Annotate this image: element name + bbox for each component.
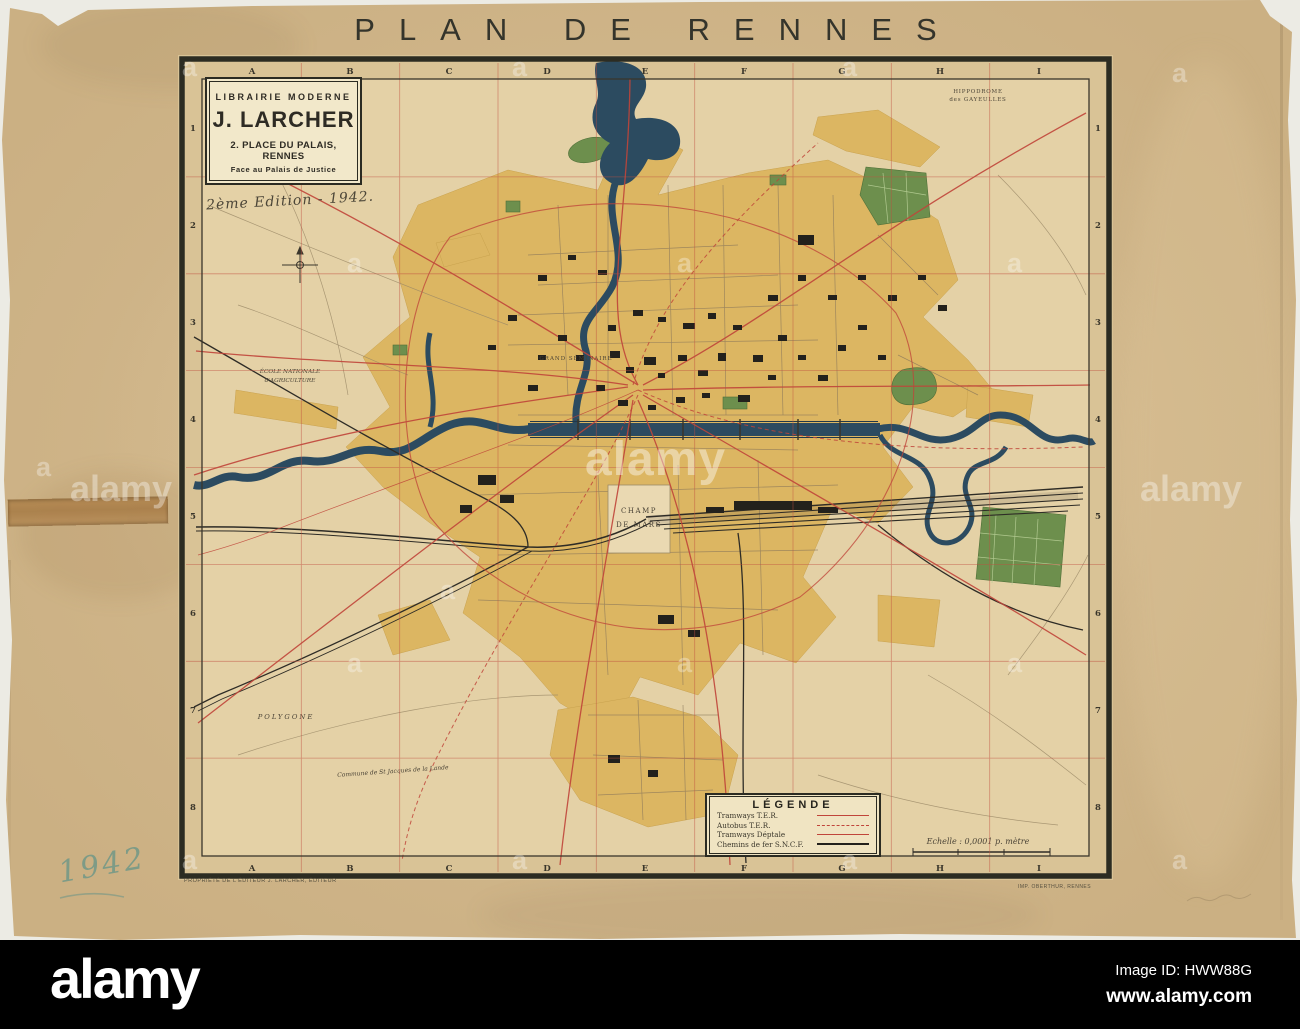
seminaire-label: GRAND SÉMINAIRE bbox=[539, 354, 612, 362]
grid-number: 1 bbox=[1095, 124, 1101, 134]
handwritten-underline bbox=[58, 892, 128, 902]
alamy-footer-bar: alamy Image ID: HWW88G www.alamy.com bbox=[0, 940, 1300, 1029]
grid-number: 5 bbox=[190, 512, 196, 522]
grid-number: 3 bbox=[1095, 318, 1101, 328]
legend-line-red-solid bbox=[817, 815, 869, 816]
paper-crease bbox=[8, 560, 11, 920]
grid-number: 6 bbox=[1095, 609, 1101, 619]
handwritten-year: 1942 bbox=[56, 841, 149, 891]
legend-label: Tramways T.E.R. bbox=[717, 811, 778, 820]
image-id: Image ID: HWW88G bbox=[1115, 962, 1252, 979]
legend-row: Tramways T.E.R. bbox=[717, 811, 869, 821]
grid-number: 7 bbox=[190, 706, 196, 716]
alamy-url: www.alamy.com bbox=[1106, 986, 1252, 1008]
grid-letter: A bbox=[248, 864, 256, 874]
publisher-cartouche-inner: LIBRAIRIE MODERNE J. LARCHER 2. PLACE DU… bbox=[209, 81, 358, 181]
grid-number: 3 bbox=[190, 318, 196, 328]
champ-de-mars-label-1: CHAMP bbox=[621, 507, 657, 515]
legend-row: Tramways Déptale bbox=[717, 830, 869, 840]
polygone-label: POLYGONE bbox=[257, 713, 315, 721]
grid-letter: H bbox=[936, 864, 944, 874]
publisher-cartouche: LIBRAIRIE MODERNE J. LARCHER 2. PLACE DU… bbox=[205, 77, 362, 185]
legend-line-red-dashed bbox=[817, 825, 869, 826]
publisher-type: LIBRAIRIE MODERNE bbox=[210, 92, 357, 102]
tape-repair bbox=[8, 496, 169, 526]
grid-letter: C bbox=[446, 864, 453, 874]
legend-panel: LÉGENDE Tramways T.E.R. Autobus T.E.R. T… bbox=[705, 793, 881, 857]
grid-letter: D bbox=[543, 864, 551, 874]
grid-letter: G bbox=[838, 864, 845, 874]
publisher-address: 2. PLACE DU PALAIS, RENNES bbox=[210, 140, 357, 162]
grid-number: 4 bbox=[1095, 415, 1101, 425]
legend-label: Autobus T.E.R. bbox=[717, 821, 771, 830]
paper-light-patch bbox=[1120, 60, 1290, 880]
grid-letter: B bbox=[346, 67, 353, 77]
legend-label: Chemins de fer S.N.C.F. bbox=[717, 840, 804, 849]
grid-number: 5 bbox=[1095, 512, 1101, 522]
grid-number: 6 bbox=[190, 609, 196, 619]
paper-crease bbox=[1280, 20, 1283, 920]
grid-letter: E bbox=[642, 864, 649, 874]
legend-title: LÉGENDE bbox=[717, 799, 869, 811]
grid-letter: I bbox=[1037, 864, 1041, 874]
grid-letter: A bbox=[248, 67, 256, 77]
legend-line-black-solid bbox=[817, 843, 869, 845]
grid-number: 8 bbox=[190, 803, 196, 813]
grid-number: 7 bbox=[1095, 706, 1101, 716]
imprint-right: IMP. OBERTHUR, RENNES bbox=[1018, 884, 1091, 890]
legend-label: Tramways Déptale bbox=[717, 830, 785, 839]
vilaine-channel bbox=[528, 423, 880, 436]
grid-letter: D bbox=[543, 67, 551, 77]
alamy-logo: alamy bbox=[50, 946, 199, 1011]
grid-letter: C bbox=[446, 67, 453, 77]
grid-number: 1 bbox=[190, 124, 196, 134]
publisher-name: J. LARCHER bbox=[210, 107, 357, 133]
legend-row: Chemins de fer S.N.C.F. bbox=[717, 840, 869, 850]
grid-letter: F bbox=[741, 67, 747, 77]
publisher-address-2: Face au Palais de Justice bbox=[210, 165, 357, 174]
legend-line-red-thin bbox=[817, 834, 869, 835]
city-map: CHAMP DE MARS bbox=[178, 55, 1113, 880]
hippodrome-label-1: HIPPODROME bbox=[953, 89, 1003, 95]
legend-panel-inner: LÉGENDE Tramways T.E.R. Autobus T.E.R. T… bbox=[709, 796, 877, 854]
grid-letter: F bbox=[741, 864, 747, 874]
legend-row: Autobus T.E.R. bbox=[717, 821, 869, 831]
grid-letter: I bbox=[1037, 67, 1041, 77]
page-title: PLAN DE RENNES bbox=[178, 12, 1113, 52]
grid-letter: G bbox=[838, 67, 845, 77]
hippodrome-label-2: des GAYEULLES bbox=[949, 97, 1006, 103]
grid-number: 4 bbox=[190, 415, 196, 425]
map-sheet-paper: PLAN DE RENNES bbox=[0, 0, 1300, 941]
grid-letter: H bbox=[936, 67, 944, 77]
ecole-label-2: d'AGRICULTURE bbox=[265, 378, 317, 384]
scale-label: Echelle : 0,0001 p. mètre bbox=[926, 837, 1030, 846]
grid-letter: B bbox=[346, 864, 353, 874]
grid-number: 2 bbox=[1095, 221, 1101, 231]
pencil-mark bbox=[1185, 893, 1255, 905]
grid-number: 8 bbox=[1095, 803, 1101, 813]
imprint-left: PROPRIÉTÉ DE L'ÉDITEUR J. LARCHER, ÉDITE… bbox=[184, 878, 337, 884]
grid-number: 2 bbox=[190, 221, 196, 231]
grid-letter: E bbox=[642, 67, 649, 77]
